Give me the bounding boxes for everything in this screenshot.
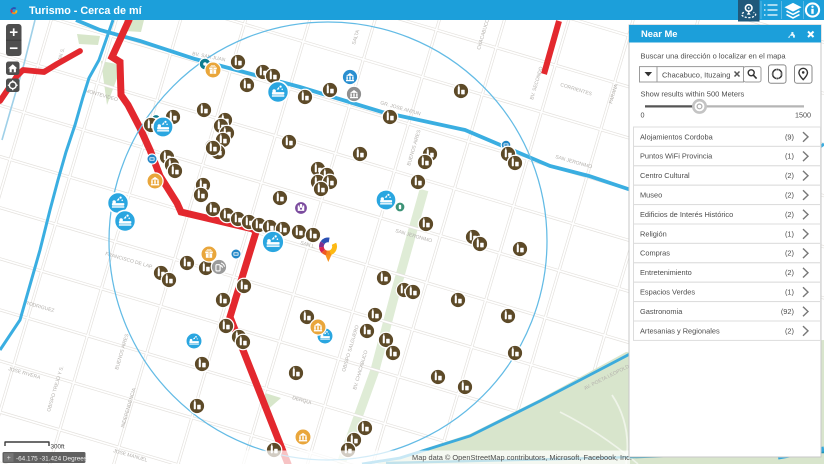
svg-text:Centro Cultural: Centro Cultural: [640, 171, 690, 180]
svg-text:(2): (2): [785, 171, 794, 180]
svg-text:Puntos WiFi Provincia: Puntos WiFi Provincia: [640, 152, 713, 161]
svg-text:(2): (2): [785, 191, 794, 200]
svg-text:(1): (1): [785, 152, 794, 161]
svg-text:Near Me: Near Me: [641, 28, 677, 39]
svg-text:Map data © OpenStreetMap contr: Map data © OpenStreetMap contributors, M…: [412, 453, 632, 462]
svg-text:(2): (2): [785, 249, 794, 258]
svg-text:(2): (2): [785, 326, 794, 335]
svg-text:(2): (2): [785, 210, 794, 219]
svg-text:1500: 1500: [795, 111, 811, 120]
svg-text:Artesanias y Regionales: Artesanias y Regionales: [640, 326, 720, 335]
svg-text:Turismo - Cerca de mí: Turismo - Cerca de mí: [29, 5, 143, 17]
svg-text:+: +: [7, 455, 11, 462]
svg-text:Religión: Religión: [640, 229, 667, 238]
svg-text:Gastronomia: Gastronomia: [640, 307, 683, 316]
svg-text:Chacabuco, Ituzaing: Chacabuco, Ituzaing: [662, 70, 730, 79]
svg-text:Espacios Verdes: Espacios Verdes: [640, 288, 695, 297]
svg-text:(1): (1): [785, 288, 794, 297]
svg-text:0: 0: [641, 111, 645, 120]
svg-text:(1): (1): [785, 229, 794, 238]
svg-text:(9): (9): [785, 132, 794, 141]
svg-text:Buscar una dirección o localiz: Buscar una dirección o localizar en el m…: [641, 52, 787, 61]
svg-text:-64.175 -31.424 Degrees: -64.175 -31.424 Degrees: [16, 455, 87, 462]
svg-text:Entretenimiento: Entretenimiento: [640, 268, 692, 277]
svg-text:Alojamientos Cordoba: Alojamientos Cordoba: [640, 132, 714, 141]
svg-text:Show results within 500 Meters: Show results within 500 Meters: [641, 90, 745, 99]
svg-text:(2): (2): [785, 268, 794, 277]
svg-text:Edificios de Interés Histórico: Edificios de Interés Histórico: [640, 210, 733, 219]
svg-text:300ft: 300ft: [51, 444, 65, 451]
svg-text:(92): (92): [781, 307, 794, 316]
svg-text:Museo: Museo: [640, 191, 662, 200]
svg-text:Compras: Compras: [640, 249, 670, 258]
